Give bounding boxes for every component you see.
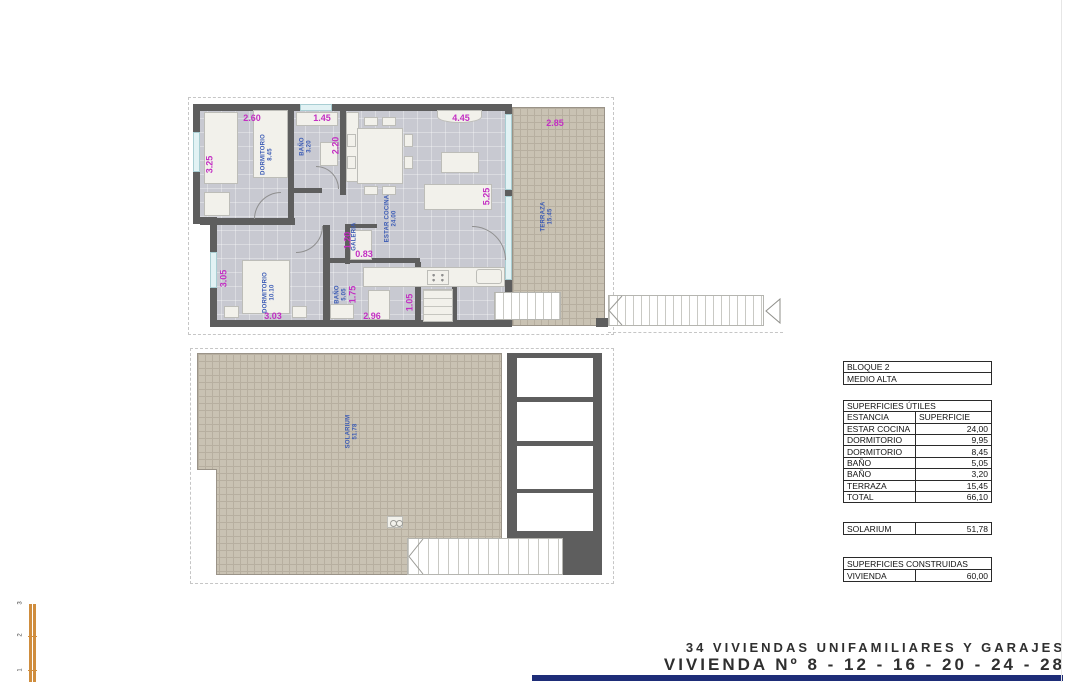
furniture-coffee-table [441, 152, 479, 173]
dimension-label: 1.05 [405, 281, 416, 325]
solarium-notch [197, 469, 217, 575]
window [210, 252, 217, 288]
scale-number: 1 [18, 668, 24, 671]
area-table: BLOQUE 2 MEDIO ALTA SUPERFICIES ÚTILES E… [843, 361, 992, 582]
pergola-opening [517, 446, 593, 489]
table-cell: 5,05 [916, 458, 991, 468]
table-cell: VIVIENDA [844, 570, 916, 581]
dimension-label: 3.25 [205, 143, 216, 187]
external-walkway [608, 295, 764, 326]
table-cell: TERRAZA [844, 481, 916, 491]
window [505, 196, 512, 280]
dimension-label: 5.25 [482, 175, 493, 219]
table-row-medio-alta: MEDIO ALTA [843, 372, 992, 384]
pergola-opening [517, 358, 593, 397]
table-cell: 51,78 [916, 523, 991, 534]
room-name: DORMITORIO [263, 251, 270, 335]
scale-number: 3 [18, 601, 24, 604]
table-row: TERRAZA 15,45 [843, 480, 992, 492]
solarium-stairs [407, 538, 563, 575]
room-name: BAÑO [335, 253, 342, 337]
dimension-label: 2.20 [331, 124, 342, 168]
table-row-vivienda: VIVIENDA 60,00 [843, 569, 992, 582]
project-title: 34 VIVIENDAS UNIFAMILIARES Y GARAJES [686, 640, 1065, 655]
walkway-direction-arrow-icon [762, 298, 782, 324]
room-label-galeria: GALERIA [352, 195, 367, 279]
wall-segment [323, 225, 330, 320]
table-gap [843, 535, 992, 557]
furniture-chair [347, 134, 356, 147]
table-cell: SUPERFICIE [916, 412, 991, 422]
scale-bar-tick [28, 636, 37, 637]
vivienda-subtitle: VIVIENDA Nº 8 - 12 - 16 - 20 - 24 - 28 [664, 655, 1065, 675]
room-name: TERRAZA [541, 175, 548, 259]
table-cell: SUPERFICIES ÚTILES [847, 401, 936, 411]
room-name: ESTAR COCINA [385, 177, 392, 261]
room-area: 10.10 [270, 251, 277, 335]
kitchen-stove [427, 270, 449, 285]
room-label-bano-1: BAÑO 3.20 [300, 105, 315, 189]
entry-stairs [494, 292, 561, 320]
table-row: BAÑO 3,20 [843, 468, 992, 480]
room-area: 5.05 [342, 253, 349, 337]
room-label-solarium: SOLARIUM 51.78 [346, 390, 361, 474]
table-row: DORMITORIO 8,45 [843, 445, 992, 457]
table-cell: TOTAL [844, 492, 916, 502]
dimension-label: 4.45 [439, 113, 483, 124]
room-label-bano-2: BAÑO 5.05 [335, 253, 350, 337]
table-row: ESTAR COCINA 24,00 [843, 423, 992, 435]
table-header-row: ESTANCIA SUPERFICIE [843, 411, 992, 423]
table-cell: 3,20 [916, 469, 991, 479]
furniture-chair [364, 117, 378, 126]
wall-segment [596, 318, 608, 327]
room-name: SOLARIUM [346, 390, 353, 474]
walkway-dashed-line [608, 332, 783, 334]
room-name: GALERIA [352, 195, 359, 279]
furniture-closet [423, 289, 453, 322]
table-cell: 66,10 [916, 492, 991, 502]
table-cell: BAÑO [844, 469, 916, 479]
room-area: 51.78 [353, 390, 360, 474]
dimension-label: 2.85 [533, 118, 577, 129]
dimension-label: 3.05 [219, 257, 230, 301]
table-row: DORMITORIO 9,95 [843, 434, 992, 446]
table-cell: DORMITORIO [844, 435, 916, 445]
stairs-start-chevron [407, 538, 425, 575]
table-cell: SUPERFICIES CONSTRUIDAS [847, 559, 968, 569]
room-label-terraza: TERRAZA 15.45 [541, 175, 556, 259]
room-label-estar-cocina: ESTAR COCINA 24.00 [385, 177, 400, 261]
room-label-dormitorio-2: DORMITORIO 10.10 [263, 251, 278, 335]
scale-number: 2 [18, 633, 24, 636]
table-cell: SOLARIUM [844, 523, 916, 534]
furniture-chair [382, 117, 396, 126]
walkway-start-chevron [608, 295, 624, 326]
navy-divider-bar [532, 675, 1063, 681]
furniture-chair [404, 134, 413, 147]
room-area: 3.20 [307, 105, 314, 189]
room-label-dormitorio-1: DORMITORIO 8.45 [261, 113, 276, 197]
room-name: DORMITORIO [261, 113, 268, 197]
table-cell: 60,00 [916, 570, 991, 581]
table-cell: BAÑO [844, 458, 916, 468]
wall-segment [217, 218, 295, 225]
window [193, 132, 200, 172]
room-name: BAÑO [300, 105, 307, 189]
window [505, 114, 512, 190]
scale-bar-tick [28, 670, 37, 671]
room-area: 8.45 [268, 113, 275, 197]
table-cell: MEDIO ALTA [847, 374, 897, 384]
table-cell: BLOQUE 2 [847, 362, 890, 372]
table-cell: 15,45 [916, 481, 991, 491]
table-cell: ESTANCIA [844, 412, 916, 422]
table-cell: 8,45 [916, 446, 991, 456]
table-row: BAÑO 5,05 [843, 457, 992, 469]
table-row-total: TOTAL 66,10 [843, 491, 992, 503]
pergola-opening [517, 402, 593, 441]
wall-segment [288, 110, 294, 188]
table-cell: ESTAR COCINA [844, 424, 916, 434]
room-area: 15.45 [548, 175, 555, 259]
roof-vent [387, 516, 403, 528]
furniture-chair [347, 156, 356, 169]
table-row-solarium: SOLARIUM 51,78 [843, 522, 992, 535]
table-cell: 9,95 [916, 435, 991, 445]
dimension-label: 2.96 [350, 311, 394, 322]
table-cell: DORMITORIO [844, 446, 916, 456]
drawing-sheet: 2.60 1.45 4.45 2.85 3.25 2.20 5.25 3.05 … [0, 0, 1070, 682]
furniture-dresser [204, 192, 230, 216]
furniture-nightstand [224, 306, 239, 318]
kitchen-sink [476, 269, 502, 284]
furniture-chair [404, 156, 413, 169]
vent-circle [396, 520, 403, 527]
room-area: 24.00 [392, 177, 399, 261]
sheet-edge-line [1061, 0, 1062, 682]
table-cell: 24,00 [916, 424, 991, 434]
pergola-opening [517, 493, 593, 531]
table-gap [843, 503, 992, 522]
table-gap [843, 385, 992, 400]
